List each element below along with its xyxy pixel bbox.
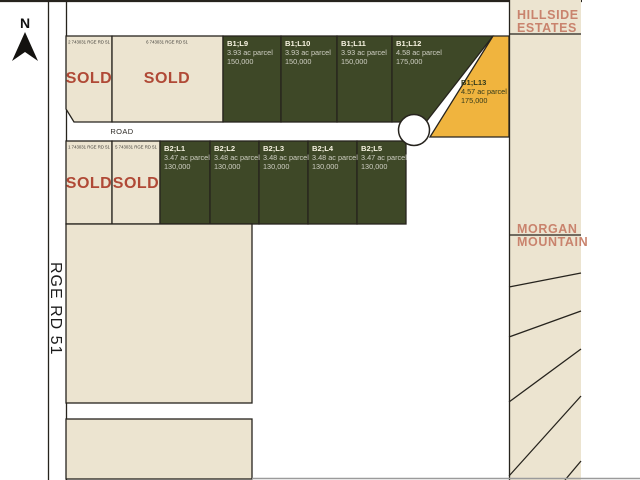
- parcel-b2-l1-price: 130,000: [164, 162, 190, 171]
- parcel-b1-l9-price: 150,000: [227, 57, 253, 66]
- hillside-estates-label-line1: HILLSIDE: [517, 8, 579, 22]
- parcel-b2-l2-id: B2;L2: [214, 144, 235, 153]
- parcel-sold-b1-1-plan: 2 743031 RGE RD 51: [68, 40, 110, 45]
- parcel-b2-l1-size: 3.47 ac parcel: [164, 153, 210, 162]
- parcel-sold-b2-1-status: SOLD: [66, 175, 112, 192]
- hillside-estates-label-line2: ESTATES: [517, 21, 577, 35]
- morgan-mountain-label-line2: MOUNTAIN: [517, 235, 588, 249]
- parcel-b1-l13-size: 4.57 ac parcel: [461, 87, 507, 96]
- parcel-sold-b1-2-plan: 6 743031 RGE RD 51: [146, 40, 188, 45]
- parcel-b1-l12-size: 4.58 ac parcel: [396, 48, 442, 57]
- parcel-sold-b1-2-status: SOLD: [144, 70, 190, 87]
- parcel-b2-l3-price: 130,000: [263, 162, 289, 171]
- parcel-b2-l2-size: 3.48 ac parcel: [214, 153, 260, 162]
- parcel-sold-b2-2-plan: 5 743031 RGE RD 51: [115, 145, 157, 150]
- parcel-sold-b2-1-plan: 1 743031 RGE RD 51: [68, 145, 110, 150]
- parcel-b2-l5-size: 3.47 ac parcel: [361, 153, 407, 162]
- plat-canvas: N RGE RD 51 ROAD HILLSIDE ESTATES MORGAN…: [0, 0, 640, 480]
- culdesac-circle: [399, 115, 430, 146]
- parcel-b2-l5-price: 130,000: [361, 162, 387, 171]
- parcel-b1-l12-price: 175,000: [396, 57, 422, 66]
- south-parcel-1[interactable]: [66, 224, 252, 403]
- parcel-b1-l9-size: 3.93 ac parcel: [227, 48, 273, 57]
- parcel-sold-b1-1-status: SOLD: [66, 70, 112, 87]
- parcel-b2-l4-id: B2;L4: [312, 144, 334, 153]
- parcel-b1-l13-price: 175,000: [461, 96, 487, 105]
- parcel-b1-l9-id: B1;L9: [227, 39, 248, 48]
- parcel-b1-l10-size: 3.93 ac parcel: [285, 48, 331, 57]
- south-parcel-2[interactable]: [66, 419, 252, 479]
- rge-rd-51-label: RGE RD 51: [47, 262, 64, 355]
- parcel-b1-l11-id: B1;L11: [341, 39, 367, 48]
- subdivision-plat-map: N RGE RD 51 ROAD HILLSIDE ESTATES MORGAN…: [0, 0, 640, 480]
- parcel-b2-l4-price: 130,000: [312, 162, 338, 171]
- parcel-b1-l10-id: B1;L10: [285, 39, 310, 48]
- parcel-b1-l12-id: B1;L12: [396, 39, 421, 48]
- north-label: N: [20, 15, 30, 31]
- parcel-b1-l10-price: 150,000: [285, 57, 311, 66]
- parcel-b1-l13-id: B1;L13: [461, 78, 486, 87]
- parcel-b2-l3-id: B2;L3: [263, 144, 284, 153]
- parcel-b2-l2-price: 130,000: [214, 162, 240, 171]
- parcel-b1-l11-price: 150,000: [341, 57, 367, 66]
- parcel-b2-l1-id: B2;L1: [164, 144, 186, 153]
- parcel-sold-b2-2-status: SOLD: [113, 175, 159, 192]
- parcel-b2-l3-size: 3.48 ac parcel: [263, 153, 309, 162]
- parcel-b1-l11-size: 3.93 ac parcel: [341, 48, 387, 57]
- north-arrow-icon: [12, 32, 38, 61]
- road-label: ROAD: [110, 127, 133, 136]
- parcel-b2-l4-size: 3.48 ac parcel: [312, 153, 358, 162]
- parcel-b2-l5-id: B2;L5: [361, 144, 383, 153]
- morgan-mountain-label-line1: MORGAN: [517, 222, 578, 236]
